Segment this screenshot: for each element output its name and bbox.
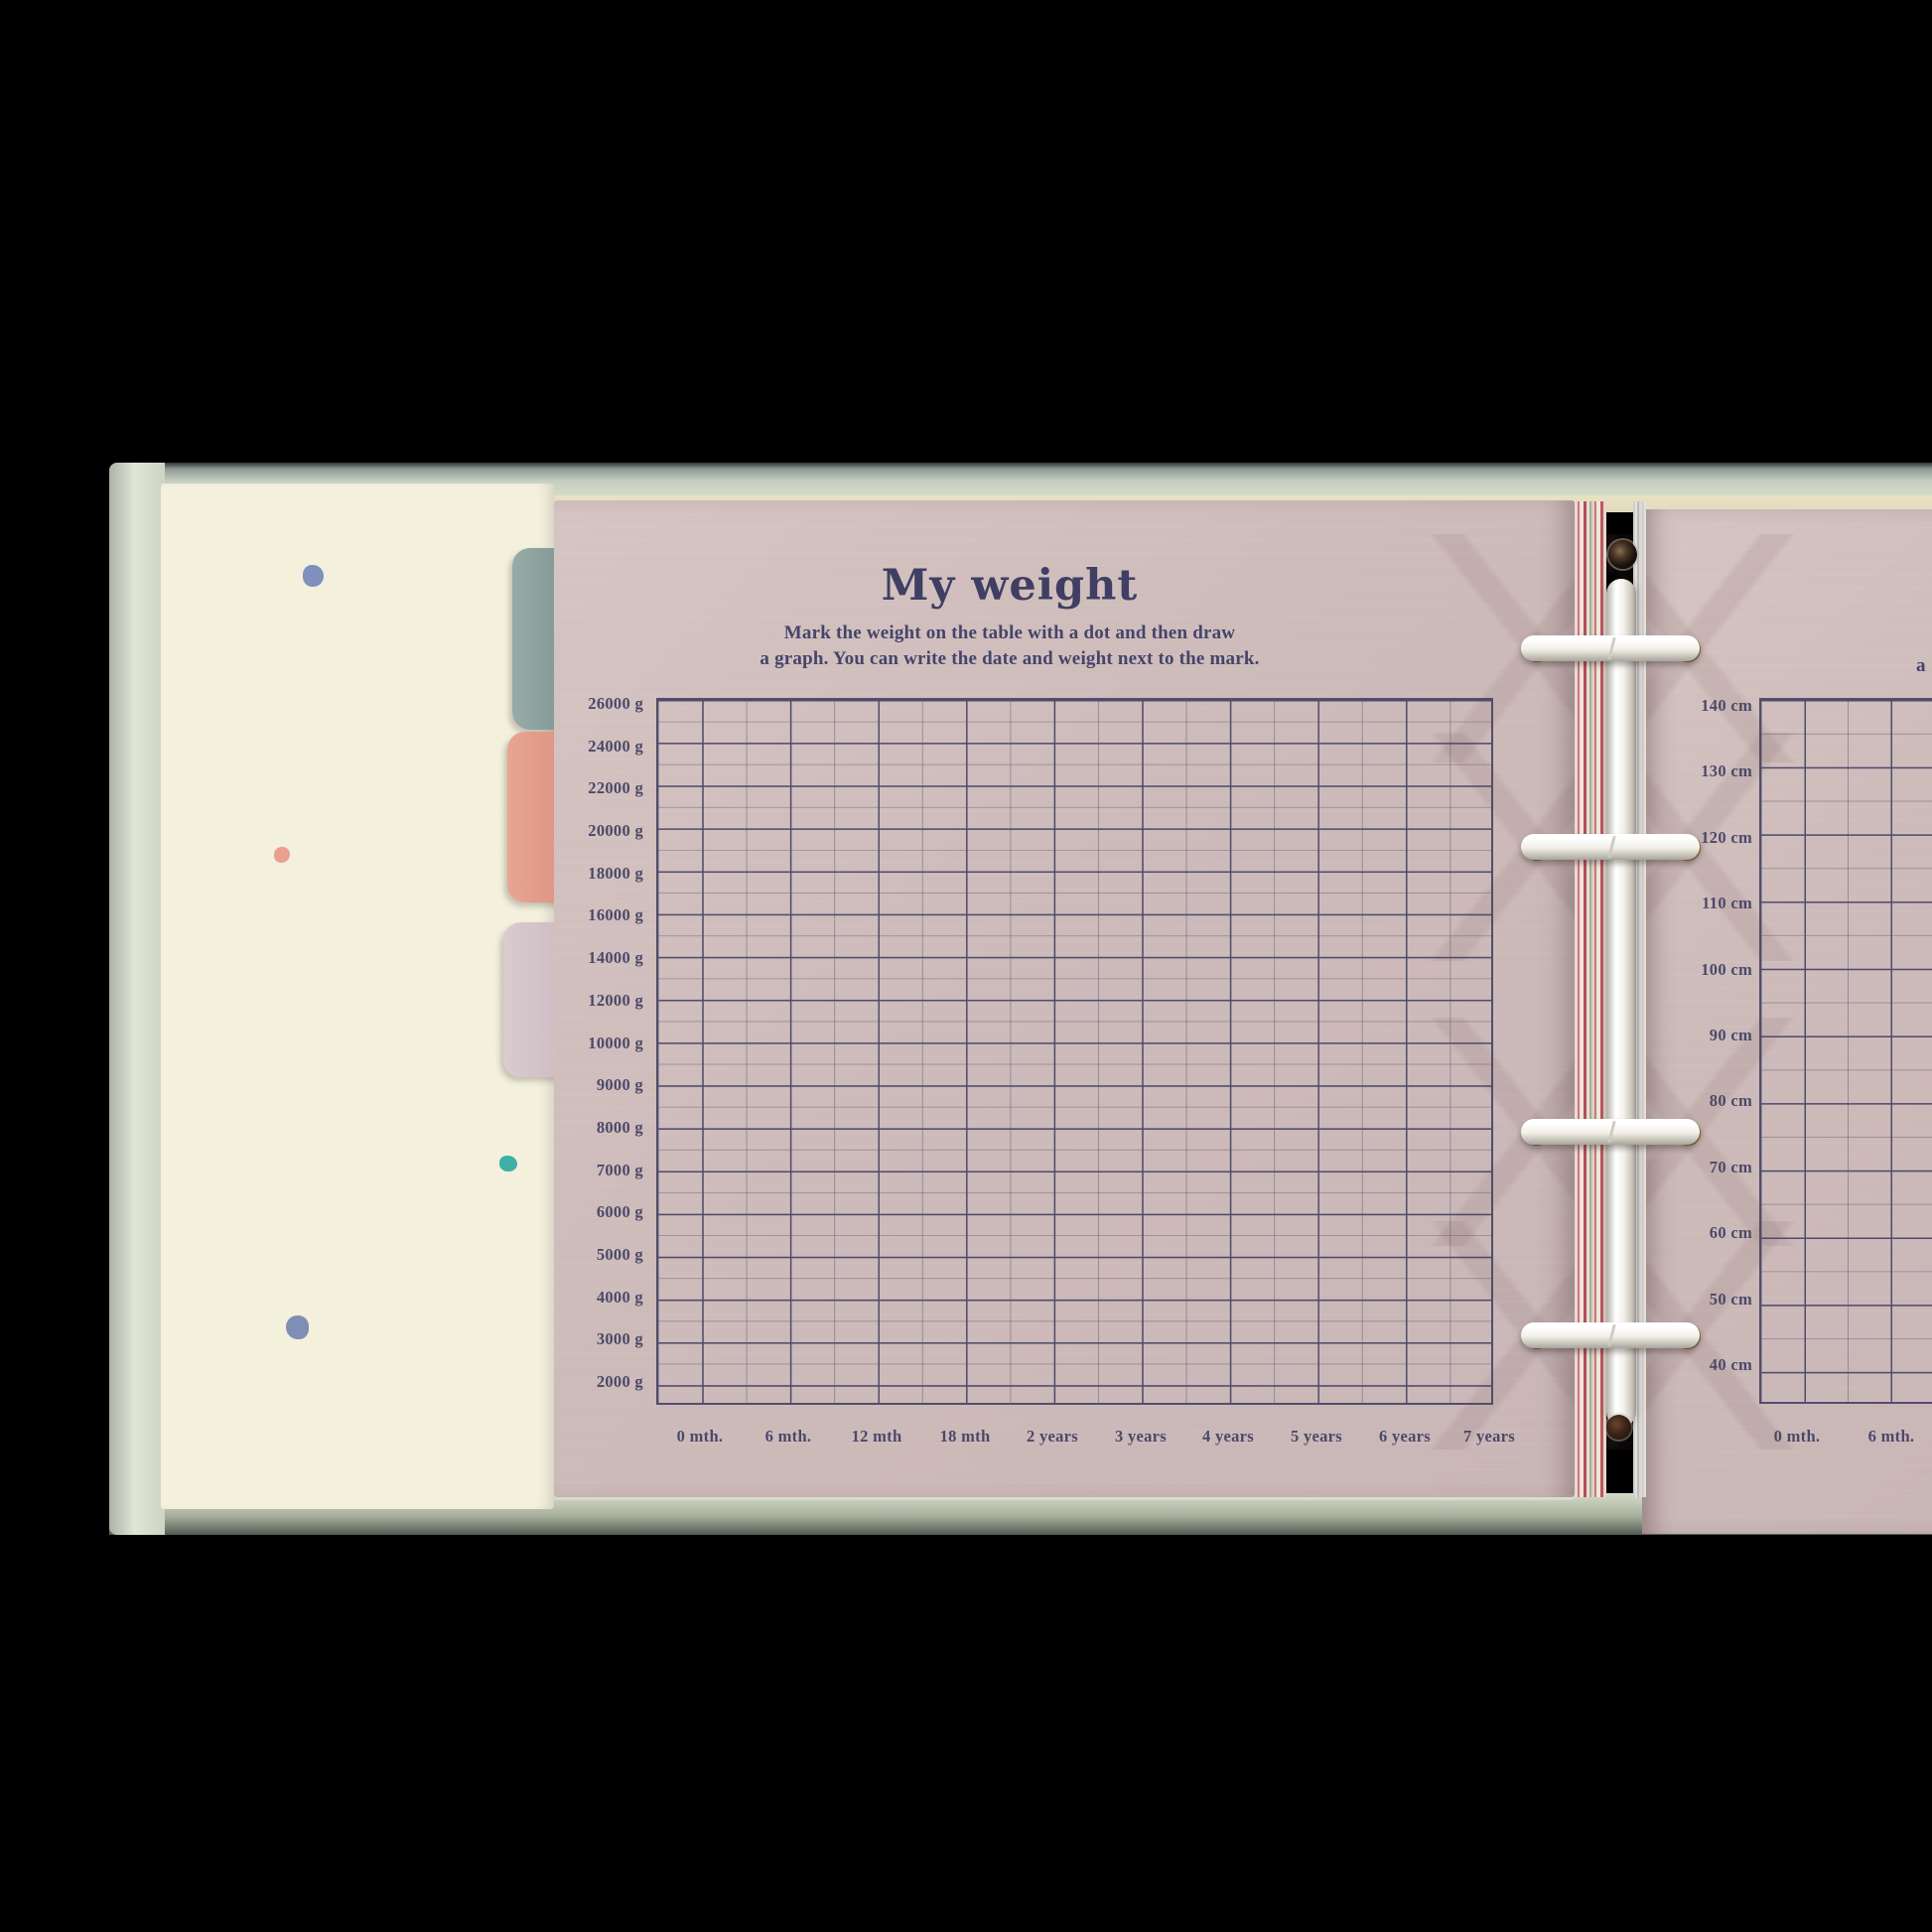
binder-cover-left-edge	[109, 463, 165, 1535]
ytick: 14000 g	[588, 948, 643, 968]
binder-ring-2	[1517, 834, 1704, 862]
binder-ring-4	[1517, 1322, 1704, 1350]
ytick: 24000 g	[588, 737, 643, 757]
xtick: 2 years	[1027, 1427, 1078, 1447]
ytick: 100 cm	[1701, 960, 1752, 980]
ytick: 3000 g	[597, 1329, 643, 1349]
ytick: 12000 g	[588, 991, 643, 1011]
ytick: 16000 g	[588, 905, 643, 925]
ytick: 26000 g	[588, 694, 643, 714]
paint-dot-salmon	[274, 847, 290, 863]
ytick: 7000 g	[597, 1161, 643, 1180]
paint-dot-blue	[303, 565, 324, 587]
xtick: 6 mth.	[765, 1427, 812, 1447]
ytick: 4000 g	[597, 1288, 643, 1308]
ytick: 6000 g	[597, 1202, 643, 1222]
xtick: 3 years	[1115, 1427, 1167, 1447]
binder-ring-1	[1517, 635, 1704, 663]
instruction-fragment: a	[1916, 655, 1926, 677]
instruction-line-1: Mark the weight on the table with a dot …	[784, 622, 1235, 644]
binder-photo: My weight Mark the weight on the table w…	[0, 0, 1932, 1932]
xtick: 0 mth.	[677, 1427, 724, 1447]
weight-grid	[656, 698, 1493, 1405]
ring-mechanism-spine	[1606, 579, 1636, 1427]
xtick: 18 mth	[940, 1427, 991, 1447]
paint-dot-blue-2	[286, 1315, 309, 1339]
ytick: 10000 g	[588, 1034, 643, 1053]
ytick: 18000 g	[588, 864, 643, 884]
binder-ring-3	[1517, 1119, 1704, 1147]
page-title: My weight	[882, 561, 1138, 611]
weight-y-axis: 26000 g 24000 g 22000 g 20000 g 18000 g …	[504, 694, 643, 1392]
ytick: 2000 g	[597, 1372, 643, 1392]
spine-rivet-bottom	[1606, 1415, 1631, 1440]
xtick: 5 years	[1291, 1427, 1342, 1447]
xtick: 4 years	[1202, 1427, 1254, 1447]
ytick: 9000 g	[597, 1075, 643, 1095]
ytick: 8000 g	[597, 1118, 643, 1138]
instruction-line-2: a graph. You can write the date and weig…	[759, 648, 1259, 670]
xtick: 12 mth	[852, 1427, 902, 1447]
ytick: 5000 g	[597, 1245, 643, 1265]
ytick: 20000 g	[588, 821, 643, 841]
spine-rivet-top	[1608, 540, 1637, 569]
xtick: 6 mth.	[1868, 1427, 1915, 1447]
left-inner-cover-page	[161, 483, 554, 1509]
ytick: 22000 g	[588, 778, 643, 798]
